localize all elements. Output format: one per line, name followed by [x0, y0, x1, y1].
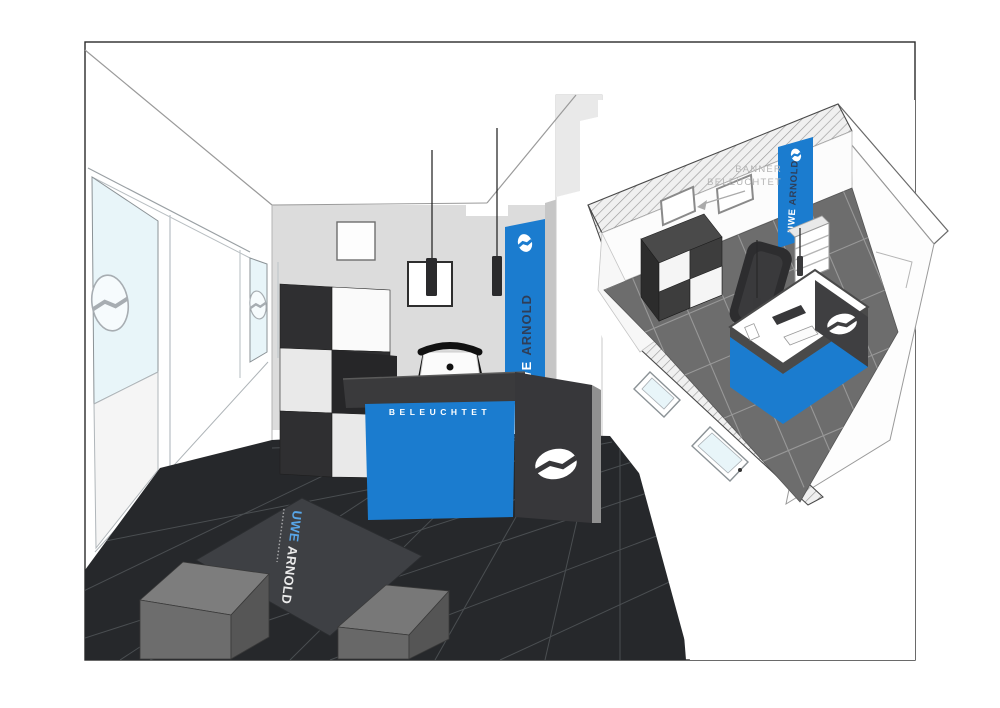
annotation-line1: BANNER: [735, 164, 782, 175]
desk-front-label: BELEUCHTET: [389, 407, 491, 417]
wall-frame-small: [337, 222, 375, 260]
desk-side-panel: [515, 372, 592, 523]
interior-rendering-page: UWEARNOLD: [0, 0, 1000, 708]
interior-rendering: UWEARNOLD: [0, 0, 1000, 708]
reception-desk: BELEUCHTET: [343, 372, 601, 523]
door-handle[interactable]: [738, 468, 742, 472]
desk-side-edge: [592, 385, 601, 523]
ceiling-recess: [466, 202, 508, 216]
annotation-line2: BELEUCHTET: [707, 177, 782, 188]
desk-front-panel: [365, 401, 515, 520]
